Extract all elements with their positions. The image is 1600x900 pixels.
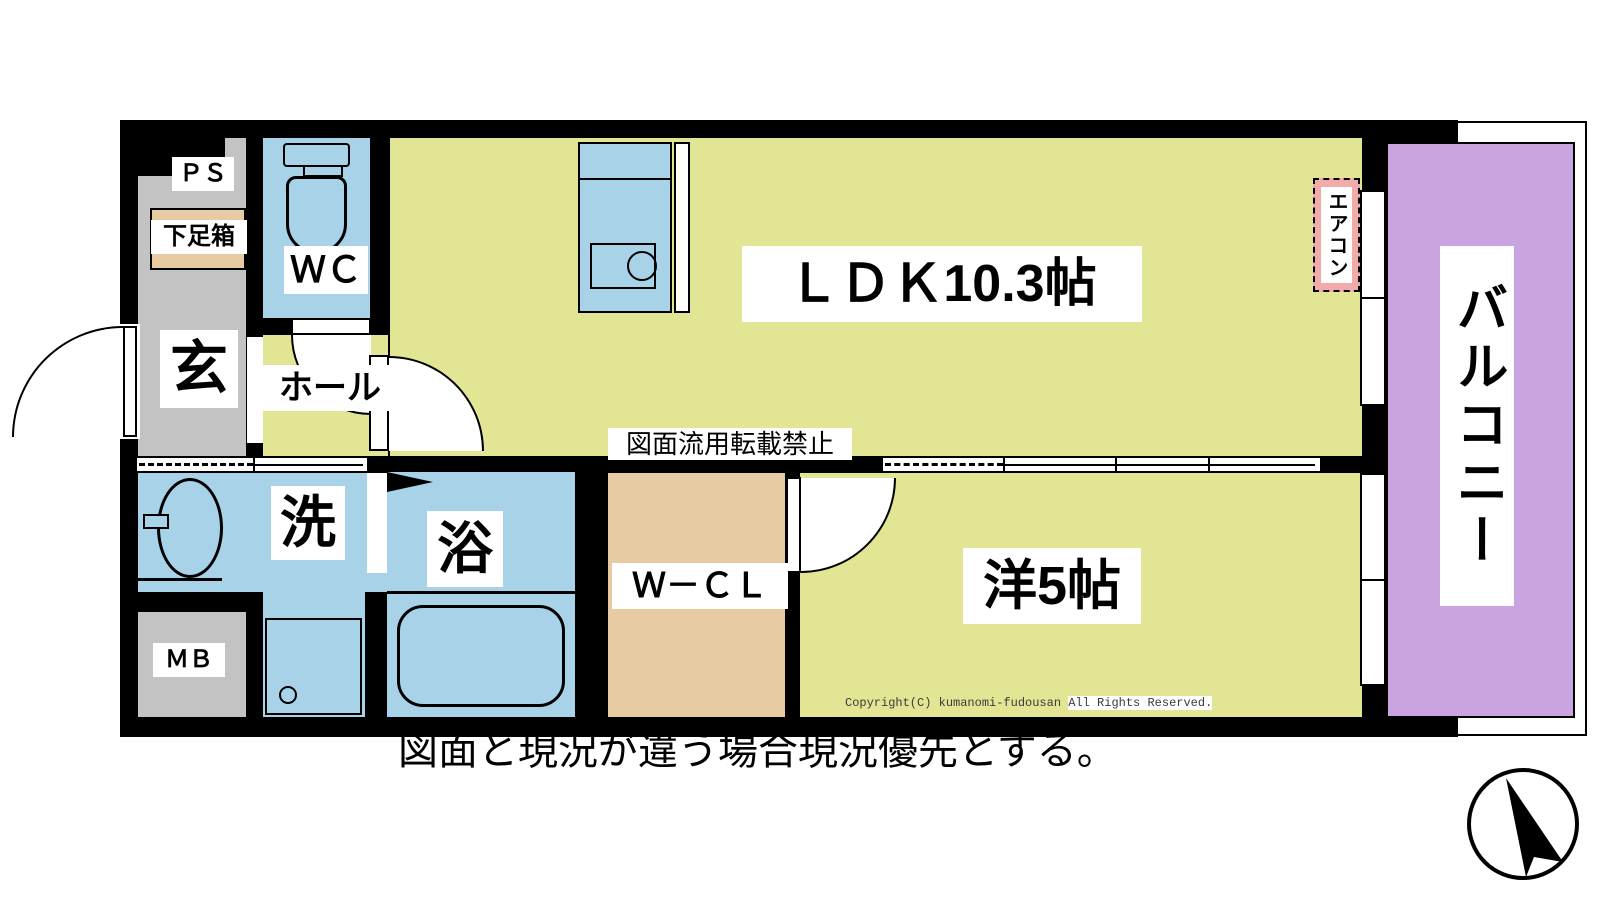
- label-hall: ホール: [263, 365, 397, 411]
- kitchen-counter-edge-icon: [674, 142, 690, 313]
- label-ldk: ＬＤＫ10.3帖: [742, 246, 1142, 322]
- bathtub-icon: [397, 605, 565, 707]
- copyright-text: Copyright(C) kumanomi-fudousan All Right…: [845, 696, 1212, 710]
- vanity-edge-line: [138, 578, 222, 581]
- window-ldk-icon: [1360, 190, 1386, 406]
- label-western-room: 洋5帖: [963, 548, 1141, 624]
- copyright-right: All Rights Reserved.: [1068, 696, 1212, 710]
- entrance-door-swing-icon: [12, 326, 123, 437]
- washbasin-tap-icon: [143, 514, 169, 529]
- north-arrow-icon: [1462, 764, 1586, 888]
- label-shoe-box: 下足箱: [151, 220, 247, 254]
- kitchen-faucet-icon: [627, 251, 657, 281]
- label-washroom: 洗: [271, 486, 345, 560]
- western-room-door-leaf-icon: [786, 477, 801, 573]
- bath-door-opening: [367, 473, 387, 573]
- toilet-bowl-icon: [286, 176, 347, 254]
- window-western-icon: [1360, 473, 1386, 686]
- aircon-marker: エアコン: [1313, 178, 1360, 292]
- toilet-tank-icon: [283, 143, 350, 167]
- label-balcony: バルコニー: [1440, 246, 1514, 606]
- disclaimer-text: 図面と現況が違う場合現況優先とする。: [398, 718, 1117, 776]
- watermark-label: 図面流用転載禁止: [608, 428, 852, 460]
- label-wc: ＷＣ: [284, 246, 368, 294]
- label-entrance: 玄: [160, 330, 238, 408]
- sliding-door-hall-washroom-icon: [137, 456, 367, 473]
- bath-divider-line: [387, 591, 575, 594]
- entrance-door-leaf-icon: [123, 326, 137, 437]
- label-walk-in-closet: Ｗ－ＣＬ: [612, 563, 788, 609]
- kitchen-counter-icon: [578, 142, 672, 313]
- washer-drain-icon: [279, 686, 297, 704]
- label-ps: ＰＳ: [172, 157, 234, 191]
- floorplan-page: エアコン ＰＳ 下足箱 ＷＣ 玄 ホール ＬＤＫ10.3帖 図面流用転載禁止 洗…: [0, 0, 1600, 900]
- kitchen-divider-icon: [580, 178, 670, 180]
- entrance-hall-opening: [247, 337, 263, 443]
- copyright-left: Copyright(C) kumanomi-fudousan: [845, 696, 1068, 710]
- label-meter-box: ＭＢ: [153, 643, 225, 677]
- label-bath: 浴: [427, 511, 503, 587]
- wall-block-bottom-right: [1386, 718, 1458, 737]
- bath-door-arrow-icon: [387, 472, 433, 492]
- wc-door-leaf-icon: [291, 318, 371, 335]
- aircon-label: エアコン: [1321, 187, 1352, 283]
- sliding-door-ldk-western-icon: [883, 456, 1320, 473]
- washer-pan-icon: [265, 618, 362, 715]
